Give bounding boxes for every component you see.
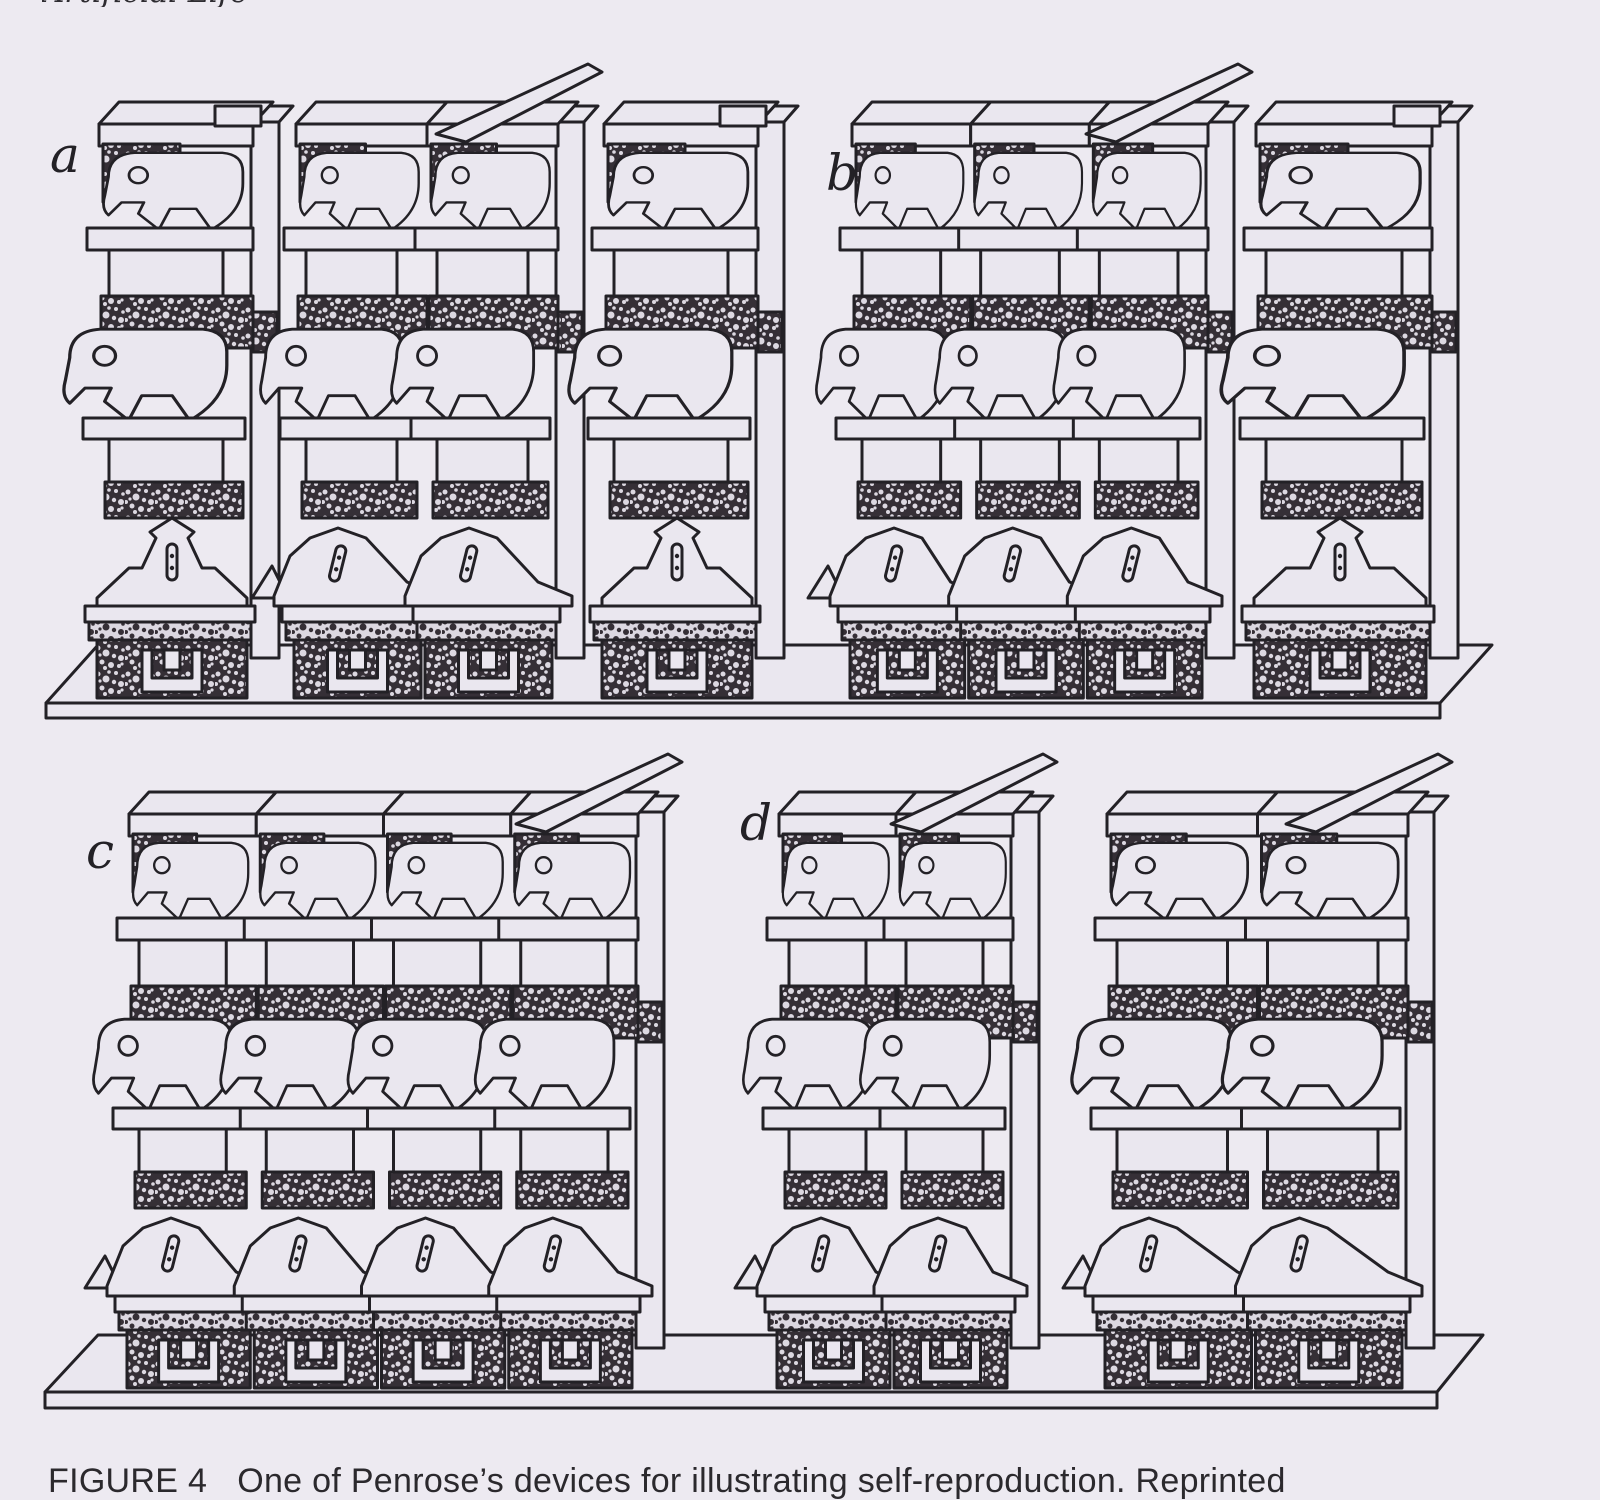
book-page: Artificial Life 77 abcd FIGURE 4One of P… <box>0 0 1600 1500</box>
hook-lever <box>1221 329 1404 420</box>
hook-lever <box>388 843 503 920</box>
machine-assembly <box>808 64 1252 698</box>
hook-lever <box>64 329 227 420</box>
hook-lever <box>1111 843 1247 920</box>
panel-label-c: c <box>86 822 114 880</box>
machine-unit <box>1222 792 1428 1388</box>
hook-lever <box>856 153 963 230</box>
penrose-figure-illustration: abcd <box>0 0 1600 1500</box>
machine-assembly <box>735 754 1057 1388</box>
hook-lever <box>1054 329 1185 420</box>
hook-lever <box>392 329 534 420</box>
ramp-slot <box>1335 544 1345 580</box>
figure-row-bottom: cd <box>45 754 1483 1408</box>
hook-lever <box>935 329 1066 420</box>
hook-lever <box>260 843 375 920</box>
hook-lever <box>743 1019 872 1110</box>
machine-unit <box>1221 102 1452 698</box>
hook-lever <box>515 843 630 920</box>
machine-assembly <box>64 102 293 698</box>
hook-lever <box>475 1019 614 1110</box>
panel-label-d: d <box>740 794 772 852</box>
hook-lever <box>133 843 248 920</box>
hook-lever <box>348 1019 487 1110</box>
machine-assembly <box>569 102 798 698</box>
hook-lever <box>261 329 403 420</box>
hook-lever <box>900 843 1006 920</box>
machine-assembly <box>252 64 602 698</box>
hook-lever <box>860 1019 989 1110</box>
hook-lever <box>1093 153 1200 230</box>
hook-lever <box>1072 1019 1232 1110</box>
figure-caption-text: One of Penrose’s devices for illustratin… <box>237 1462 1285 1500</box>
hook-lever <box>431 153 550 230</box>
hook-lever <box>1222 1019 1382 1110</box>
hook-lever <box>93 1019 232 1110</box>
figure-panel-d: d <box>735 754 1452 1388</box>
hook-lever <box>816 329 947 420</box>
figure-panel-c: c <box>85 754 682 1388</box>
figure-caption-label: FIGURE 4 <box>48 1462 207 1500</box>
machine-assembly <box>1221 102 1472 698</box>
figure-caption: FIGURE 4One of Penrose’s devices for ill… <box>48 1462 1568 1500</box>
hook-lever <box>608 153 747 230</box>
machine-unit <box>64 102 273 698</box>
hook-lever <box>103 153 242 230</box>
figure-row-top: ab <box>46 64 1492 718</box>
ramp-slot <box>167 544 177 580</box>
machine-assembly <box>1063 754 1452 1388</box>
hook-lever <box>975 153 1082 230</box>
figure-panel-a: a <box>50 64 798 698</box>
hook-lever <box>221 1019 360 1110</box>
machine-unit <box>392 102 578 698</box>
hook-lever <box>569 329 732 420</box>
machine-unit <box>569 102 778 698</box>
machine-assembly <box>85 754 682 1388</box>
panel-label-b: b <box>826 144 858 202</box>
figure-panel-b: b <box>808 64 1472 698</box>
hook-lever <box>300 153 419 230</box>
hook-lever <box>1262 843 1398 920</box>
hook-lever <box>1261 153 1420 230</box>
panel-label-a: a <box>50 126 80 184</box>
hook-lever <box>783 843 889 920</box>
ramp-slot <box>672 544 682 580</box>
